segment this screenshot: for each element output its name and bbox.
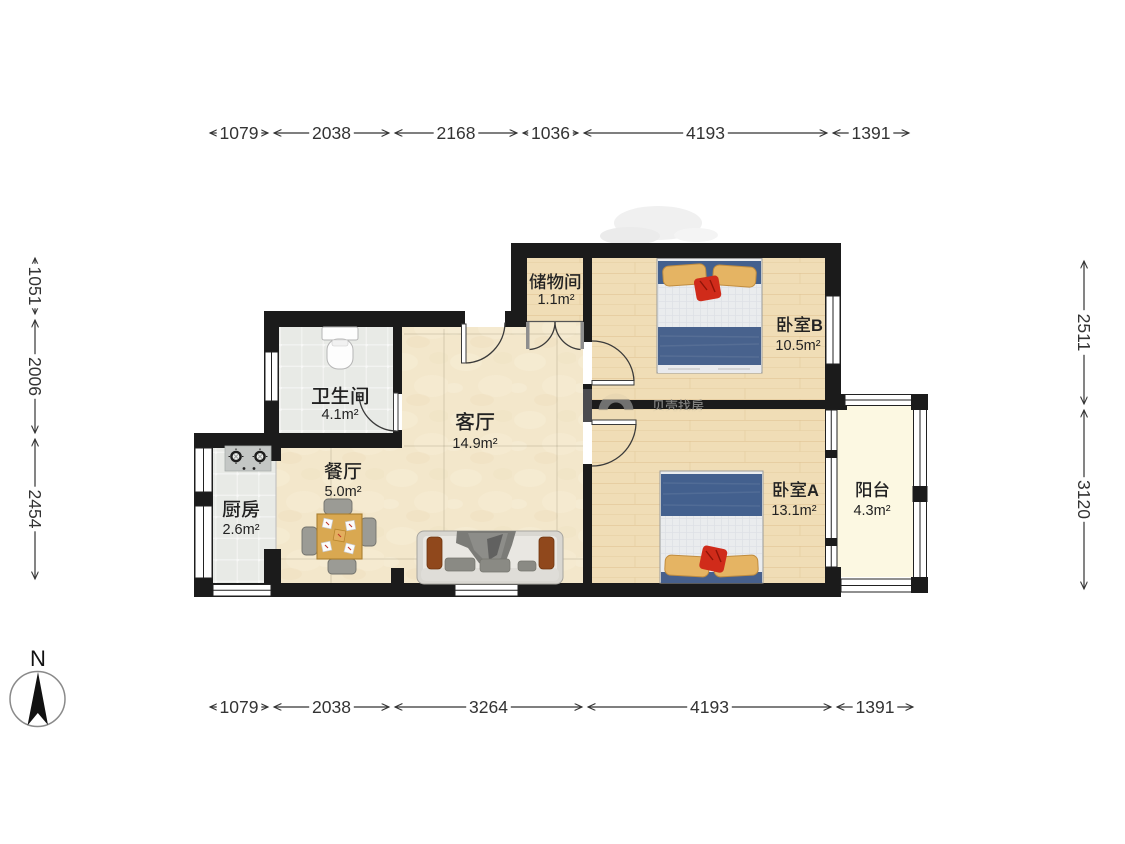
svg-text:A: A bbox=[807, 482, 819, 500]
svg-text:3120: 3120 bbox=[1074, 480, 1094, 519]
svg-text:2511: 2511 bbox=[1074, 314, 1094, 352]
svg-text:1.1m²: 1.1m² bbox=[537, 292, 574, 308]
svg-text:4193: 4193 bbox=[690, 697, 729, 717]
svg-text:2038: 2038 bbox=[312, 697, 351, 717]
svg-text:1051: 1051 bbox=[25, 267, 45, 306]
svg-text:14.9m²: 14.9m² bbox=[452, 436, 497, 452]
svg-text:3264: 3264 bbox=[469, 697, 508, 717]
svg-text:1036: 1036 bbox=[531, 123, 570, 143]
svg-text:2168: 2168 bbox=[437, 123, 476, 143]
svg-text:2006: 2006 bbox=[25, 357, 45, 396]
svg-text:4.1m²: 4.1m² bbox=[321, 407, 358, 423]
svg-text:B: B bbox=[811, 317, 823, 335]
svg-text:2454: 2454 bbox=[25, 490, 45, 529]
svg-text:1391: 1391 bbox=[856, 697, 895, 717]
svg-text:2038: 2038 bbox=[312, 123, 351, 143]
svg-text:5.0m²: 5.0m² bbox=[324, 484, 361, 500]
svg-text:N: N bbox=[30, 646, 46, 671]
svg-text:10.5m²: 10.5m² bbox=[775, 338, 820, 354]
svg-text:2.6m²: 2.6m² bbox=[222, 522, 259, 538]
svg-text:13.1m²: 13.1m² bbox=[771, 503, 816, 519]
svg-text:4.3m²: 4.3m² bbox=[853, 503, 890, 519]
svg-text:4193: 4193 bbox=[686, 123, 725, 143]
svg-text:1079: 1079 bbox=[220, 697, 259, 717]
svg-text:1391: 1391 bbox=[852, 123, 891, 143]
svg-text:1079: 1079 bbox=[220, 123, 259, 143]
